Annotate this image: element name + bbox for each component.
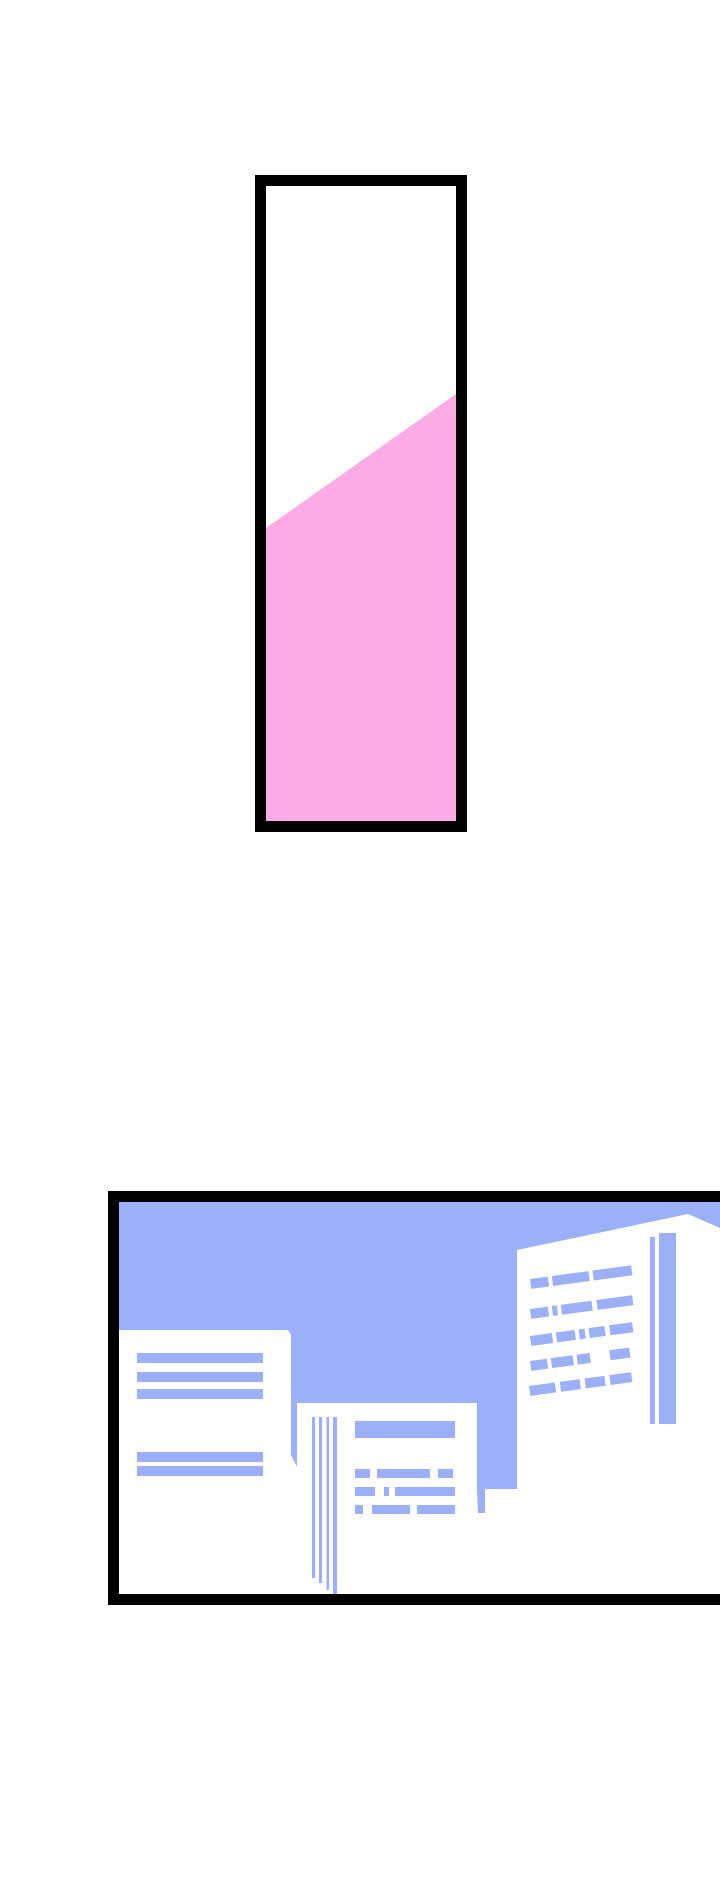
dash [384, 1487, 389, 1496]
text-line [137, 1452, 263, 1462]
dash-row [355, 1469, 453, 1478]
window-dash [577, 1353, 591, 1365]
dash [377, 1469, 430, 1478]
header-bar [355, 1421, 455, 1438]
text-line [137, 1372, 263, 1382]
spine-line [333, 1417, 337, 1594]
panel-1 [255, 175, 467, 832]
city-illustration [119, 1202, 720, 1594]
text-line [137, 1466, 263, 1476]
dash [372, 1505, 410, 1514]
spine-line [319, 1417, 322, 1583]
text-line [137, 1353, 263, 1363]
dash [355, 1487, 375, 1496]
spine-line [327, 1417, 330, 1590]
text-line [137, 1389, 263, 1399]
spine-line [312, 1417, 315, 1578]
dash-row [355, 1487, 455, 1496]
dash [355, 1469, 370, 1478]
panel-2 [108, 1191, 720, 1605]
dash [395, 1487, 455, 1496]
window-dash [588, 1326, 605, 1338]
dash [417, 1505, 455, 1514]
dash [355, 1505, 363, 1514]
corner-stripe-thin [650, 1237, 655, 1424]
corner-stripe-wide [659, 1233, 676, 1424]
comic-page [0, 0, 720, 1890]
dash [438, 1469, 453, 1478]
panel-1-art [266, 186, 456, 821]
